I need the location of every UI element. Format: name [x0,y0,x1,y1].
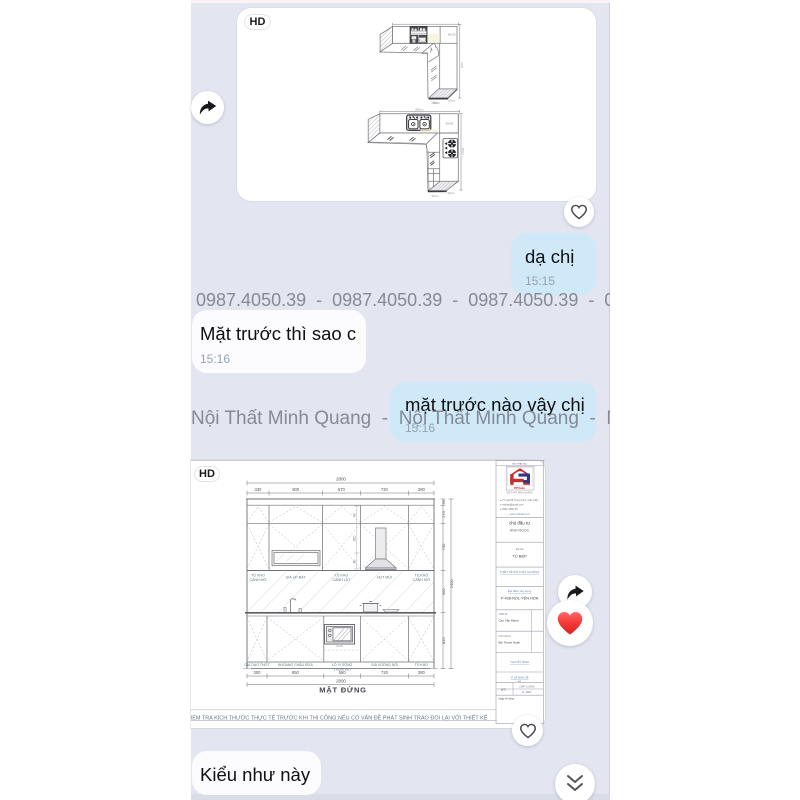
svg-text:KHOANG CHẬU RỬA: KHOANG CHẬU RỬA [278,662,314,667]
svg-text:380: 380 [418,487,426,492]
svg-text:CÁNH LẬT: CÁNH LẬT [333,578,352,582]
svg-text:THUYẾT MINH: THUYẾT MINH [510,659,529,664]
svg-text:8 - 2017: 8 - 2017 [522,691,532,694]
svg-text:● 0987.4050.39: ● 0987.4050.39 [500,508,518,511]
svg-text:TỦ KHÔ: TỦ KHÔ [415,573,429,578]
svg-text:CÁNH MỞ: CÁNH MỞ [249,577,266,582]
svg-text:● noithat@gmail.com: ● noithat@gmail.com [500,504,524,507]
svg-text:700: 700 [441,543,446,550]
svg-text:PPVwin: PPVwin [514,486,525,490]
svg-text:Dự án: Dự án [516,547,524,551]
svg-text:2170: 2170 [460,62,464,69]
svg-text:KIỂM TRA KÍCH THƯỚC THỰC TẾ TR: KIỂM TRA KÍCH THƯỚC THỰC TẾ TRƯỚC KHI TH… [191,714,488,721]
svg-text:800: 800 [292,487,300,492]
svg-text:60cm: 60cm [432,100,440,104]
svg-text:570: 570 [338,487,346,492]
svg-text:LÒ VI SÓNG: LÒ VI SÓNG [332,662,353,667]
svg-text:HÚT MÙI: HÚT MÙI [377,575,392,580]
svg-text:280cm: 280cm [415,107,424,111]
svg-text:380: 380 [418,670,426,675]
svg-text:330: 330 [255,487,263,492]
svg-text:2800: 2800 [336,679,346,684]
svg-text:1 NGĂN KÉO: 1 NGĂN KÉO [334,667,352,672]
svg-text:● 77 ngõ 85 Trung Kính, Cầu Gi: ● 77 ngõ 85 Trung Kính, Cầu Giấy [500,499,539,502]
svg-text:720: 720 [381,670,389,675]
svg-text:Kích thước: Kích thước [499,635,512,638]
svg-text:90: 90 [441,499,446,504]
svg-text:www.noithatmq.vn: www.noithatmq.vn [509,513,530,516]
svg-text:300: 300 [254,670,262,675]
svg-text:NỘI THẤT MINH QUANG: NỘI THẤT MINH QUANG [506,492,532,495]
svg-text:60cm: 60cm [448,191,456,195]
svg-text:Địa điểm xây dựng: Địa điểm xây dựng [508,589,532,593]
svg-text:GIÁ ÚP BÁT: GIÁ ÚP BÁT [286,575,307,580]
svg-text:chủ đầu tư: chủ đầu tư [509,521,530,526]
svg-text:TỦ BẾP: TỦ BẾP [512,554,527,559]
svg-text:82cm: 82cm [461,148,465,156]
svg-text:60x40: 60x40 [446,122,454,126]
svg-text:90: 90 [353,560,357,564]
svg-text:2400: 2400 [449,579,454,589]
svg-text:A3: A3 [518,680,521,683]
svg-text:TỦ KHO: TỦ KHO [251,573,265,578]
svg-text:TỦ KHO: TỦ KHO [415,662,429,667]
svg-text:P 408-NO1-YÊN HÒA: P 408-NO1-YÊN HÒA [501,596,539,601]
svg-text:GIÁ XOONG NỒI: GIÁ XOONG NỒI [371,662,398,667]
svg-text:THIẾT KẾ NỘI THẤT GIA ĐÌNH: THIẾT KẾ NỘI THẤT GIA ĐÌNH [500,569,539,574]
svg-text:270: 270 [441,510,446,517]
svg-text:60x35: 60x35 [448,32,456,36]
svg-text:TỈ LỆ BẢN VẼ: TỈ LỆ BẢN VẼ [511,675,529,680]
svg-text:720: 720 [381,487,389,492]
svg-text:ANH NGỌC: ANH NGỌC [510,529,530,533]
svg-text:GIÁ DAO THỚT: GIÁ DAO THỚT [244,662,270,667]
svg-text:Thiết kế: Thiết kế [499,613,509,616]
svg-text:CHẤT LƯỢNG: CHẤT LƯỢNG [519,686,535,689]
svg-text:Ngày vẽ hàng: Ngày vẽ hàng [499,698,515,701]
svg-text:Cao Văn Mạnh: Cao Văn Mạnh [499,619,519,623]
svg-text:350: 350 [353,536,357,542]
svg-text:850: 850 [292,670,300,675]
svg-text:810: 810 [441,637,446,644]
svg-text:NỘI THẤT MQ: NỘI THẤT MQ [512,462,527,465]
svg-text:90cm: 90cm [432,194,440,198]
svg-text:2800: 2800 [336,477,346,482]
svg-text:60cm: 60cm [449,99,457,103]
svg-text:Bùi Thanh Hoàn: Bùi Thanh Hoàn [499,641,521,645]
svg-text:90: 90 [353,513,357,517]
svg-text:MẶT ĐỨNG: MẶT ĐỨNG [319,686,367,695]
svg-text:@TL: @TL [501,689,507,692]
svg-text:600: 600 [441,588,446,595]
